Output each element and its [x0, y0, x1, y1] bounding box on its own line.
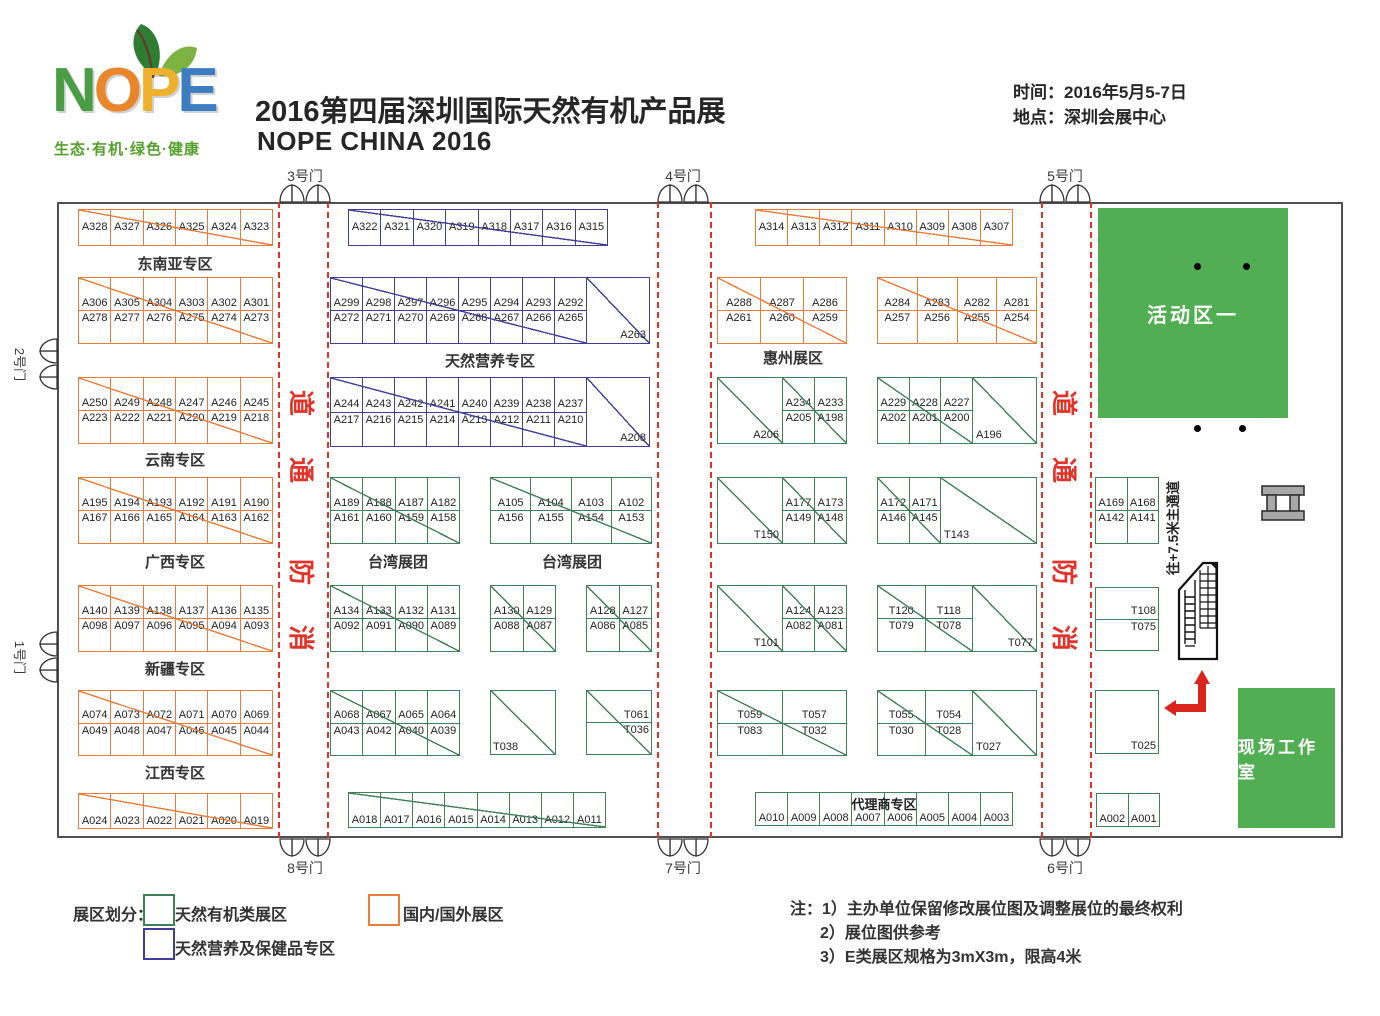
booth-row: T055T054 [878, 691, 972, 724]
booth-label: A287 [767, 296, 797, 310]
booth-cell: A328 [79, 210, 111, 245]
booth-label: A133 [364, 604, 394, 618]
booth-block: A105A104A103A102A156A155A154A153 [490, 477, 652, 544]
booth-label: A208 [620, 432, 646, 444]
booth-cell: A069 [241, 691, 272, 723]
booth-label: A259 [810, 311, 840, 325]
booth-cell: A008 [820, 793, 852, 825]
pillar-dot [1239, 425, 1246, 432]
booth-cell: A088 [491, 619, 524, 651]
booth-label: A286 [810, 296, 840, 310]
booth-cell: A205 [783, 411, 815, 443]
booth-row: A299A298A297A296A295A294A293A292 [331, 278, 586, 311]
activity-area: 现场工作室 [1238, 688, 1335, 828]
booth-label: A296 [428, 296, 458, 310]
booth-label: A274 [209, 311, 239, 325]
booth-cell: A237 [555, 378, 586, 412]
zone-label: 东南亚专区 [137, 253, 212, 274]
booth-row: A261A260A259 [718, 311, 846, 343]
legend-label-nutrition: 天然营养及保健品专区 [175, 935, 335, 959]
booth-label: A198 [816, 411, 846, 425]
booth-cell: A193 [144, 478, 176, 510]
booth-block: A189A188A187A182A161A160A159A158 [330, 477, 460, 544]
booth-big-cell: T077 [972, 586, 1036, 651]
booth-cell: A241 [427, 378, 459, 412]
booth-label: A012 [542, 813, 572, 827]
booth-label: A318 [479, 220, 509, 234]
fire-corridor-line [710, 202, 712, 838]
gate-door-icon [279, 183, 331, 203]
booth-label: A004 [949, 811, 979, 825]
booth-cell: T038 [491, 691, 555, 754]
gate-label: 6号门 [1047, 858, 1083, 878]
booth-cell: A064 [428, 691, 459, 723]
booth-cell: A257 [878, 311, 918, 343]
gate-door-icon [657, 838, 709, 858]
booth-cell: A161 [331, 511, 363, 543]
booth-cell: A211 [523, 413, 555, 447]
booth-label: A086 [588, 619, 618, 633]
booth-label: A196 [976, 429, 1002, 441]
booth-cell: A228 [910, 378, 942, 410]
booth-cell: A242 [395, 378, 427, 412]
booth-cell: T054 [926, 691, 973, 723]
zone-label: 惠州展区 [763, 347, 823, 368]
booth-cell: A302 [208, 278, 240, 310]
booth-label: A241 [428, 397, 458, 411]
booth-cell: A246 [208, 378, 240, 410]
booth-cell: A129 [524, 586, 556, 618]
booth-label: T059 [735, 708, 764, 722]
booth-row: A217A216A215A214A213A212A211A210 [331, 413, 586, 447]
booth-row: A172A171 [878, 478, 940, 511]
booth-label: A271 [364, 311, 394, 325]
booth-block: A206A234A233A205A198 [717, 377, 847, 444]
booth-cell: A074 [79, 691, 111, 723]
booth-cell: A022 [144, 794, 176, 828]
booth-label: A233 [816, 396, 846, 410]
booth-cell: A222 [111, 411, 143, 443]
booth-label: A003 [982, 811, 1012, 825]
booth-block: A322A321A320A319A318A317A316A315 [348, 209, 608, 246]
booth-cell: T078 [926, 619, 973, 651]
booth-cell: A221 [144, 411, 176, 443]
booth-label: A269 [428, 311, 458, 325]
booth-grid: A195A194A193A192A191A190A167A166A165A164… [79, 478, 272, 543]
booth-label: A189 [332, 496, 362, 510]
booth-cell: A250 [79, 378, 111, 410]
booth-cell: A326 [144, 210, 176, 245]
booth-block: A172A171A146A145T143 [877, 477, 1037, 544]
booth-cell: A288 [718, 278, 761, 310]
fire-corridor-line [1041, 202, 1043, 838]
booth-label: A278 [80, 311, 110, 325]
booth-label: A049 [80, 724, 110, 738]
booth-grid: T055T054T030T028 [878, 691, 972, 755]
booth-cell: A093 [241, 619, 272, 651]
booth-big-cell: A208 [586, 378, 649, 446]
booth-label: A311 [854, 220, 883, 234]
booth-label: A301 [241, 296, 271, 310]
fire-corridor-text: 道 [1052, 389, 1080, 417]
booth-block: A134A133A132A131A092A091A090A089 [330, 585, 460, 652]
booth-cell: A318 [479, 210, 511, 245]
booth-cell: A188 [363, 478, 395, 510]
booth-cell: T059 [718, 691, 783, 723]
activity-area: 活动区一 [1098, 208, 1288, 418]
booth-cell: A098 [79, 619, 111, 651]
booth-label: A244 [332, 397, 362, 411]
booth-cell: A306 [79, 278, 111, 310]
booth-row: A244A243A242A241A240A239A238A237 [331, 378, 586, 413]
booth-label: A200 [942, 411, 972, 425]
booth-label: A257 [883, 311, 913, 325]
booth-cell: A124 [783, 586, 815, 618]
booth-grid: A328A327A326A325A324A323 [79, 210, 272, 245]
booth-grid: T061T036 [587, 691, 651, 754]
booth-row: A328A327A326A325A324A323 [79, 210, 272, 245]
booth-grid: A010A009A008A007A006A005A004A003 [756, 793, 1012, 825]
booth-label: A105 [496, 496, 526, 510]
booth-cell: A131 [428, 586, 459, 618]
booth-cell: A160 [363, 511, 395, 543]
zone-label: 台湾展团 [542, 551, 602, 572]
booth-label: A169 [1096, 496, 1126, 510]
booth-cell: A191 [208, 478, 240, 510]
booth-cell: A182 [428, 478, 459, 510]
booth-grid: A105A104A103A102A156A155A154A153 [491, 478, 651, 543]
booth-label: A320 [415, 220, 445, 234]
pillar-dot [1194, 263, 1201, 270]
booth-cell: A006 [885, 793, 917, 825]
fire-corridor-text: 防 [1052, 558, 1080, 586]
booth-cell: A281 [997, 278, 1036, 310]
booth-block: T101A124A123A082A081 [717, 585, 847, 652]
booth-label: T118 [935, 604, 963, 618]
booth-label: A210 [556, 413, 586, 427]
booth-row: A205A198 [783, 411, 846, 443]
booth-cell: A007 [852, 793, 884, 825]
booth-label: A166 [112, 511, 142, 525]
booth-label: A131 [429, 604, 459, 618]
note-line: 3）E类展区规格为3mX3m，限高4米 [820, 946, 1183, 970]
booth-label: A317 [512, 220, 542, 234]
booth-label: A275 [177, 311, 207, 325]
booth-label: T054 [934, 708, 963, 722]
booth-cell: A070 [208, 691, 240, 723]
booth-label: T061 [622, 708, 651, 722]
booth-cell: A297 [395, 278, 427, 310]
booth-label: A218 [241, 411, 271, 425]
booth-cell: A086 [587, 619, 620, 651]
booth-cell: A158 [428, 511, 459, 543]
booth-cell: A247 [176, 378, 208, 410]
booth-cell: A015 [445, 793, 477, 827]
booth-cell: A145 [910, 511, 941, 543]
booth-label: A219 [209, 411, 239, 425]
booth-label: A018 [350, 813, 380, 827]
booth-label: A267 [492, 311, 522, 325]
logo-letter: P [139, 56, 177, 125]
booth-row: A140A139A138A137A136A135 [79, 586, 272, 619]
booth-cell: A294 [491, 278, 523, 310]
booth-cell: A259 [804, 311, 846, 343]
booth-label: A299 [332, 296, 362, 310]
booth-label: A190 [241, 496, 271, 510]
booth-row: A010A009A008A007A006A005A004A003 [756, 793, 1012, 825]
booth-cell: A239 [491, 378, 523, 412]
booth-label: T078 [934, 619, 963, 633]
booth-label: A069 [241, 708, 271, 722]
booth-label: A137 [177, 604, 207, 618]
booth-block: A068A067A065A064A043A042A040A039 [330, 690, 460, 756]
booth-label: A161 [332, 511, 362, 525]
floorplan-canvas: NOPE 生态·有机·绿色·健康 2016第四届深圳国际天然有机产品展 NOPE… [0, 0, 1380, 1016]
booth-row: A288A287A286 [718, 278, 846, 311]
booth-row: A322A321A320A319A318A317A316A315 [349, 210, 607, 245]
booth-row: A002A001 [1097, 794, 1159, 826]
booth-label: A250 [80, 396, 110, 410]
booth-grid: A177A173A149A148 [783, 478, 846, 543]
booth-big-cell: T150 [718, 478, 783, 543]
booth-cell: A137 [176, 586, 208, 618]
booth-label: A282 [962, 296, 992, 310]
booth-cell: A096 [144, 619, 176, 651]
booth-label: A293 [524, 296, 554, 310]
booth-cell: A295 [459, 278, 491, 310]
booth-cell: A308 [949, 210, 981, 245]
booth-cell: A313 [788, 210, 820, 245]
booth-row: T120T118 [878, 586, 972, 619]
booth-label: A009 [789, 811, 819, 825]
turn-arrow-icon [1162, 668, 1214, 728]
booth-row: A134A133A132A131 [331, 586, 459, 619]
legend-swatch-organic [143, 894, 175, 926]
notes: 注：1）主办单位保留修改展位图及调整展位的最终权利 2）展位图供参考 3）E类展… [790, 898, 1183, 970]
booth-label: A138 [144, 604, 174, 618]
booth-label: A216 [364, 413, 394, 427]
booth-row: A284A283A282A281 [878, 278, 1036, 311]
booth-row: A202A201A200 [878, 411, 972, 443]
booth-cell: A266 [523, 311, 555, 343]
booth-grid: A250A249A248A247A246A245A223A222A221A220… [79, 378, 272, 443]
booth-cell: A004 [949, 793, 981, 825]
booth-cell: A092 [331, 619, 363, 651]
booth-cell: T055 [878, 691, 926, 723]
booth-label: A102 [617, 496, 647, 510]
booth-cell: A312 [820, 210, 852, 245]
booth-cell: A319 [446, 210, 478, 245]
booth-label: A007 [853, 811, 883, 825]
booth-label: A268 [460, 311, 490, 325]
booth-cell: T061 [587, 691, 651, 722]
zone-label: 台湾展团 [368, 551, 428, 572]
booth-label: A229 [878, 396, 908, 410]
booth-row: A043A042A040A039 [331, 724, 459, 756]
booth-cell: A287 [761, 278, 804, 310]
booth-row: A223A222A221A220A219A218 [79, 411, 272, 443]
booth-label: A002 [1097, 812, 1127, 826]
booth-label: A283 [922, 296, 952, 310]
booth-row: A088A087 [491, 619, 555, 651]
booth-cell: A256 [918, 311, 958, 343]
booth-cell: A021 [176, 794, 208, 828]
booth-label: A071 [177, 708, 207, 722]
booth-grid: T108T075 [1096, 588, 1158, 650]
booth-row: T083T032 [718, 724, 846, 756]
booth-cell: A234 [783, 378, 815, 410]
booth-label: A227 [942, 396, 972, 410]
booth-label: A245 [241, 396, 271, 410]
booth-cell: A173 [815, 478, 846, 510]
logo-letters: NOPE [52, 60, 216, 122]
booth-cell: A127 [620, 586, 652, 618]
booth-label: A097 [112, 619, 142, 633]
booth-label: A005 [917, 811, 947, 825]
booth-cell: A275 [176, 311, 208, 343]
booth-label: A270 [396, 311, 426, 325]
booth-label: A129 [524, 604, 554, 618]
booth-label: A201 [910, 411, 940, 425]
booth-label: A215 [396, 413, 426, 427]
booth-block: T055T054T030T028T027 [877, 690, 1037, 756]
booth-cell: A276 [144, 311, 176, 343]
booth-label: A256 [922, 311, 952, 325]
booth-label: A284 [883, 296, 913, 310]
booth-label: A082 [784, 619, 814, 633]
booth-label: A313 [789, 220, 819, 234]
gate-label: 5号门 [1047, 166, 1083, 186]
booth-row: A169A168 [1096, 478, 1158, 511]
booth-label: A103 [576, 496, 606, 510]
booth-cell: A134 [331, 586, 363, 618]
booth-grid: A299A298A297A296A295A294A293A292A272A271… [331, 278, 586, 343]
booth-label: A020 [209, 814, 239, 828]
booth-cell: T036 [587, 723, 651, 754]
booth-cell: A019 [241, 794, 272, 828]
booth-cell: A136 [208, 586, 240, 618]
booth-cell: A271 [363, 311, 395, 343]
booth-cell: A301 [241, 278, 272, 310]
booth-block: A128A127A086A085 [586, 585, 652, 652]
booth-label: A148 [816, 511, 846, 525]
booth-label: A090 [396, 619, 426, 633]
booth-block: A074A073A072A071A070A069A049A048A047A046… [78, 690, 273, 756]
booth-row: A018A017A016A015A014A013A012A011 [349, 793, 605, 827]
fire-corridor-text: 道 [289, 389, 317, 417]
booth-label: A297 [396, 296, 426, 310]
booth-cell: A142 [1096, 511, 1128, 543]
booth-label: A048 [112, 724, 142, 738]
booth-cell: A309 [917, 210, 949, 245]
booth-label: A008 [821, 811, 851, 825]
booth-label: A265 [556, 311, 586, 325]
booth-big-cell: A263 [586, 278, 649, 343]
booth-label: A228 [910, 396, 940, 410]
booth-cell: A227 [941, 378, 972, 410]
booth-cell: A046 [176, 724, 208, 756]
booth-row: A130A129 [491, 586, 555, 619]
booth-label: A140 [80, 604, 110, 618]
booth-label: A309 [917, 220, 947, 234]
booth-row: A177A173 [783, 478, 846, 511]
booth-cell: A200 [941, 411, 972, 443]
booth-label: A171 [910, 496, 940, 510]
booth-grid: A128A127A086A085 [587, 586, 651, 651]
fire-corridor-text: 消 [1052, 624, 1080, 652]
booth-label: T120 [887, 604, 916, 618]
booth-block: T025 [1095, 690, 1159, 754]
booth-grid: A172A171A146A145 [878, 478, 940, 543]
legend-label-domestic: 国内/国外展区 [403, 901, 503, 925]
booth-grid: T038 [491, 691, 555, 754]
booth-grid: A288A287A286A261A260A259 [718, 278, 846, 343]
booth-label: A328 [80, 220, 110, 234]
gate-label: 4号门 [665, 166, 701, 186]
booth-block: T150A177A173A149A148 [717, 477, 847, 544]
booth-label: T083 [735, 724, 764, 738]
booth-label: T075 [1129, 620, 1158, 634]
booth-label: A308 [949, 220, 979, 234]
booth-label: A192 [177, 496, 207, 510]
booth-row: A306A305A304A303A302A301 [79, 278, 272, 311]
booth-label: A324 [209, 220, 239, 234]
gate-label: 2号门 [11, 348, 30, 381]
booth-cell: A153 [612, 511, 651, 543]
booth-cell: A017 [381, 793, 413, 827]
booth-cell: A260 [761, 311, 804, 343]
booth-row: A098A097A096A095A094A093 [79, 619, 272, 651]
booth-label: A145 [910, 511, 940, 525]
booth-row: T025 [1096, 691, 1158, 753]
event-venue: 地点：深圳会展中心 [1013, 105, 1187, 130]
booth-cell: A048 [111, 724, 143, 756]
booth-cell: A159 [396, 511, 428, 543]
booth-cell: A141 [1128, 511, 1159, 543]
booth-label: A136 [209, 604, 239, 618]
logo-tagline: 生态·有机·绿色·健康 [54, 138, 200, 159]
booth-label: A238 [524, 397, 554, 411]
booth-cell: A315 [576, 210, 607, 245]
booth-label: A164 [177, 511, 207, 525]
booth-block: A250A249A248A247A246A245A223A222A221A220… [78, 377, 273, 444]
booth-grid: A234A233A205A198 [783, 378, 846, 443]
booth-label: A070 [209, 708, 239, 722]
booth-cell: A311 [852, 210, 884, 245]
booth-cell: T118 [926, 586, 973, 618]
booth-label: T079 [887, 619, 916, 633]
booth-cell: A323 [241, 210, 272, 245]
booth-label: A043 [332, 724, 362, 738]
booth-label: T150 [754, 529, 779, 541]
booth-label: A044 [241, 724, 271, 738]
booth-cell: A073 [111, 691, 143, 723]
booth-label: A072 [144, 708, 174, 722]
booth-block: A024A023A022A021A020A019 [78, 793, 273, 829]
booth-cell: A244 [331, 378, 363, 412]
booth-block: A328A327A326A325A324A323 [78, 209, 273, 246]
booth-label: A064 [429, 708, 459, 722]
booth-cell: A316 [543, 210, 575, 245]
booth-label: A092 [332, 619, 362, 633]
booth-label: A248 [144, 396, 174, 410]
booth-cell: A214 [427, 413, 459, 447]
gate-door-icon [657, 183, 709, 203]
booth-cell: A085 [620, 619, 652, 651]
nope-logo: NOPE 生态·有机·绿色·健康 [52, 20, 252, 178]
legend-swatch-domestic [368, 894, 400, 926]
booth-label: A021 [177, 814, 207, 828]
